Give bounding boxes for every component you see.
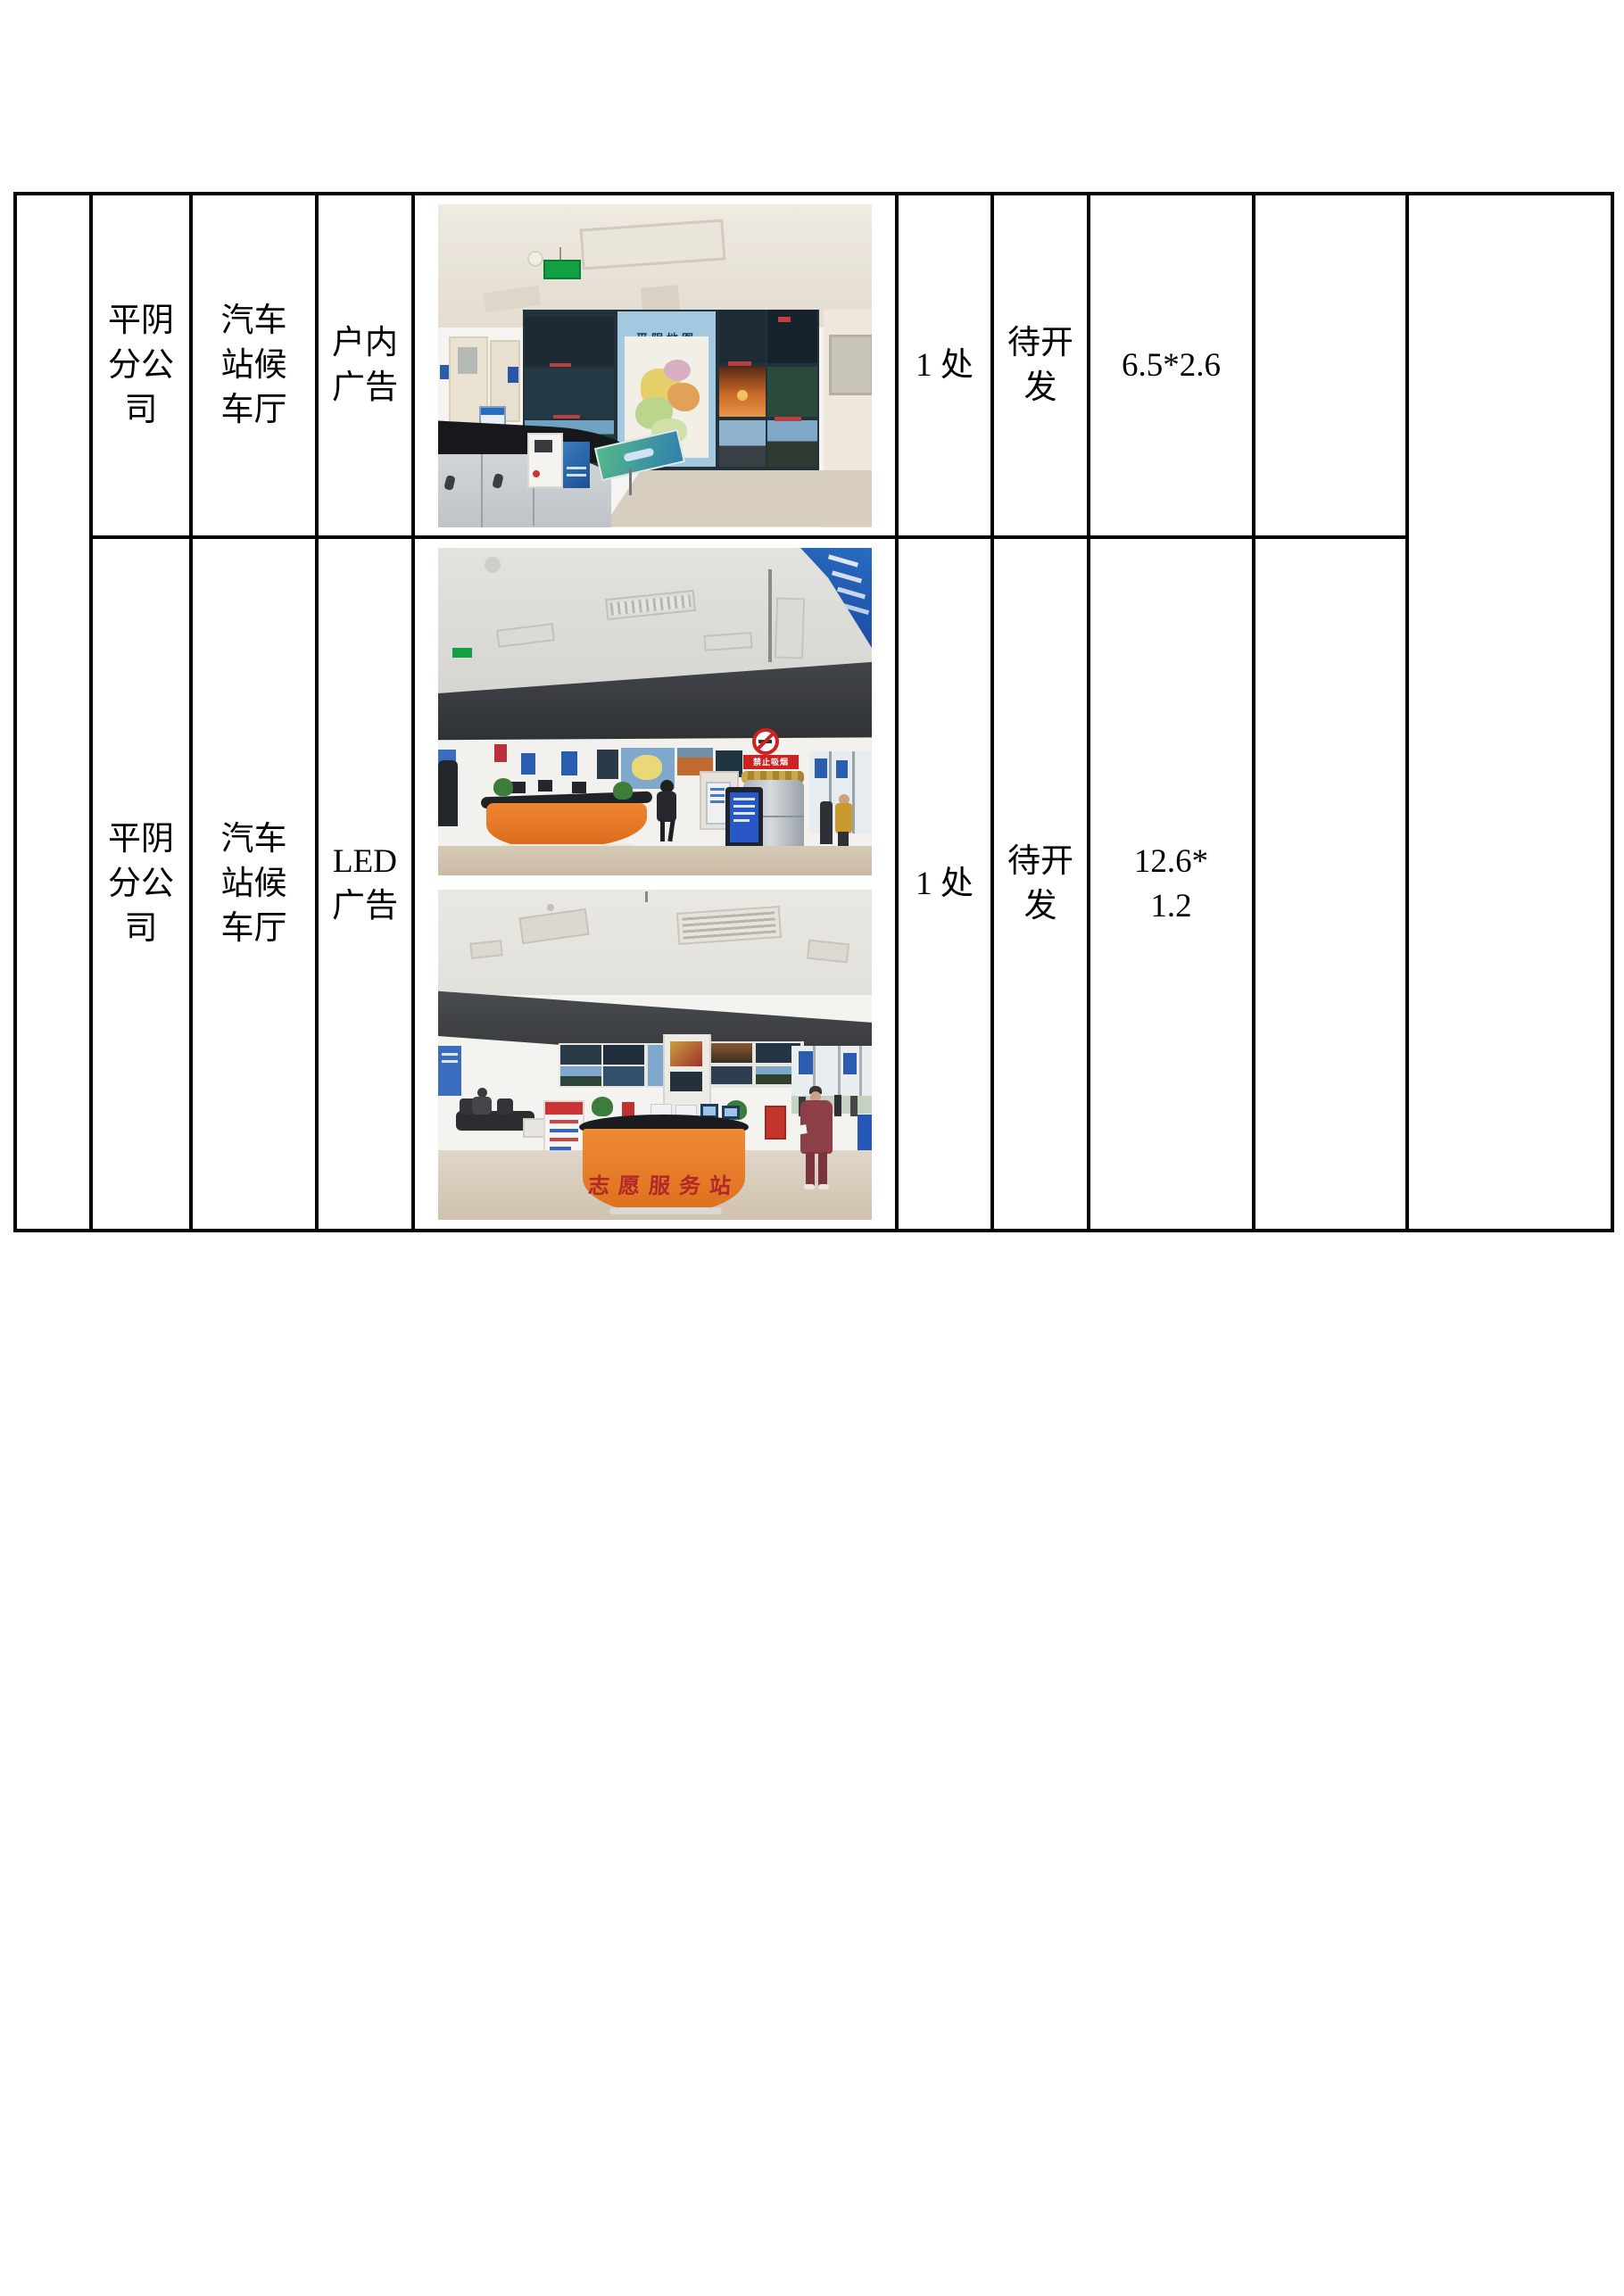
desk-label: 志愿服务站 [581, 1165, 746, 1209]
wall-collage [706, 1041, 804, 1088]
wall-sign-blue [440, 365, 449, 379]
document-page: { "page": { "background": "#ffffff" }, "… [0, 0, 1624, 2296]
person-right-dark [820, 801, 833, 844]
cell-quantity: 1 处 [897, 194, 992, 537]
collage-photo [767, 367, 817, 417]
board-leg [629, 468, 632, 495]
hanging-sign-blue [815, 758, 827, 778]
person-left [438, 760, 458, 826]
card-reader-device [527, 433, 563, 488]
cell-status: 待开 发 [992, 194, 1089, 537]
blue-box [563, 442, 590, 488]
kiosk-screen [730, 792, 758, 842]
collage-photo [708, 1043, 752, 1063]
photo-hall-led-band: 禁止吸烟 [438, 548, 872, 875]
collage-photo-cathedral [719, 420, 766, 467]
exit-sign [543, 260, 581, 279]
wall-poster-red [494, 744, 507, 762]
banner-line [710, 788, 725, 791]
cabinet-seam [481, 454, 483, 527]
collage-photo-sunset [719, 367, 766, 417]
banner-line [710, 800, 725, 803]
sign-line [550, 1120, 578, 1123]
device-logo [533, 470, 540, 477]
map-region-orange [667, 383, 700, 411]
person-leg [818, 1152, 827, 1186]
wall-sign-blue [508, 367, 518, 383]
device-screen [534, 440, 552, 452]
ad-inventory-table: 平阴 分公 司 汽车 站候 车厅 户内 广告 [13, 192, 1614, 1232]
caption-strip [728, 361, 751, 366]
hanging-sign-blue [836, 760, 848, 778]
cell-ad-type: LED 广告 [317, 537, 413, 1231]
cell-photo: 平阴地图 [413, 194, 897, 537]
desk-monitor [538, 780, 552, 792]
plant [493, 778, 513, 796]
person-center-body [657, 792, 676, 822]
bench-back [497, 1098, 513, 1115]
sign-header-red [545, 1102, 583, 1115]
desk-monitor [572, 782, 586, 793]
collage-photo [525, 369, 614, 418]
collage-photo [603, 1066, 644, 1086]
map-region-pink [664, 360, 691, 381]
counter-screen-face [725, 1108, 737, 1116]
info-board-pill [623, 447, 654, 461]
poster-line [442, 1053, 458, 1056]
service-desk-orange [486, 803, 647, 848]
fire-extinguisher-box [765, 1106, 786, 1140]
cell-status: 待开 发 [992, 537, 1089, 1231]
cell-empty [1254, 537, 1407, 1231]
table-row: 平阴 分公 司 汽车 站候 车厅 LED 广告 [15, 537, 1612, 1231]
banner-line [710, 794, 725, 797]
person-center-leg [660, 820, 665, 841]
collage-photo [560, 1045, 601, 1065]
caption-strip [553, 415, 580, 419]
floor [603, 470, 872, 527]
map-blob [632, 755, 662, 780]
plant [592, 1097, 613, 1116]
collage-photo-hilltop [767, 420, 817, 467]
ceiling-vent [807, 940, 849, 964]
no-smoking-icon [752, 728, 779, 755]
collage-photo [767, 310, 817, 363]
seated-person-body [472, 1097, 492, 1115]
hanging-rod [768, 569, 772, 662]
floor [438, 846, 872, 875]
cell-index-empty [15, 194, 91, 1231]
person-leg [806, 1152, 815, 1186]
column-poster-dark [670, 1072, 702, 1091]
wall-photo-poster [597, 750, 618, 779]
ceiling-sensor [547, 904, 554, 911]
cell-branch: 平阴 分公 司 [91, 537, 191, 1231]
kiosk-text-line [733, 819, 750, 822]
distant-person [850, 1096, 858, 1116]
cell-remark-empty [1407, 194, 1612, 1231]
person-right-yellow [835, 803, 852, 833]
sign-line [550, 1138, 578, 1141]
service-desk-orange: 志愿服务站 [583, 1129, 745, 1214]
photo-volunteer-desk: 志愿服务站 [438, 890, 872, 1220]
cell-location: 汽车 站候 车厅 [191, 537, 317, 1231]
ceiling-speaker [527, 251, 543, 267]
no-smoking-banner: 禁止吸烟 [743, 755, 799, 769]
distant-person [834, 1095, 841, 1116]
kiosk-text-line [733, 812, 755, 815]
hanging-sign-blue [843, 1053, 857, 1074]
cell-quantity: 1 处 [897, 537, 992, 1231]
sign-line [550, 1129, 578, 1132]
shoe [818, 1184, 829, 1189]
menu-sign-board [543, 1100, 584, 1157]
wall-speaker-panel [775, 597, 805, 659]
paper-in-hand [794, 1124, 807, 1135]
flyer-header [481, 408, 504, 415]
kiosk-text-line [733, 798, 755, 800]
wall-poster-blue [521, 753, 535, 775]
window-mullion [852, 751, 855, 833]
cabinet-handle [443, 475, 456, 491]
hanging-sign-blue [799, 1051, 813, 1074]
blue-kiosk [858, 1115, 872, 1150]
kiosk-text-line [733, 805, 755, 808]
desk-monitor [511, 782, 526, 793]
exit-sign [452, 648, 472, 658]
person-center-leg [667, 820, 675, 841]
sunset-sun [737, 390, 748, 401]
board-text-line [828, 554, 858, 567]
cabinet-handle [492, 473, 504, 489]
column-vent [829, 335, 872, 395]
photo-waiting-hall-map-wall: 平阴地图 [438, 204, 872, 527]
wall-poster-blue [561, 751, 577, 775]
vent-slats [610, 594, 692, 615]
vent-slats [682, 911, 775, 939]
shoe [804, 1184, 815, 1189]
cell-size: 12.6* 1.2 [1089, 537, 1254, 1231]
cell-location: 汽车 站候 车厅 [191, 194, 317, 537]
blue-box-line [567, 474, 586, 477]
ceiling-fixture [645, 891, 648, 902]
cell-empty [1254, 194, 1407, 537]
caption-strip [550, 363, 571, 367]
desk-base-strip [609, 1207, 722, 1214]
counter-screen [722, 1106, 740, 1119]
collage-photo [560, 1066, 601, 1086]
ceiling-vent [703, 632, 752, 651]
door-window [458, 347, 477, 374]
caption-strip [778, 317, 791, 322]
collage-photo [708, 1066, 752, 1084]
collage-photo [603, 1045, 644, 1065]
cell-photos: 禁止吸烟 [413, 537, 897, 1231]
board-text-line [837, 587, 866, 600]
collage-photo [719, 310, 766, 363]
poster-line [442, 1060, 458, 1063]
blue-box-line [567, 467, 586, 469]
board-text-line [832, 570, 862, 583]
counter-screen-face [703, 1107, 716, 1115]
wall-poster-blue [438, 1046, 461, 1096]
caption-strip [775, 417, 801, 421]
ceiling-speaker [485, 557, 501, 573]
table-row: 平阴 分公 司 汽车 站候 车厅 户内 广告 [15, 194, 1612, 537]
column-poster-gold [670, 1041, 702, 1066]
collage-photo [525, 317, 614, 366]
plant [613, 782, 633, 800]
cell-ad-type: 户内 广告 [317, 194, 413, 537]
ceiling-vent [469, 940, 503, 959]
cell-branch: 平阴 分公 司 [91, 194, 191, 537]
cell-size: 6.5*2.6 [1089, 194, 1254, 537]
ceiling [438, 890, 872, 995]
photos-stack: 禁止吸烟 [415, 539, 895, 1229]
